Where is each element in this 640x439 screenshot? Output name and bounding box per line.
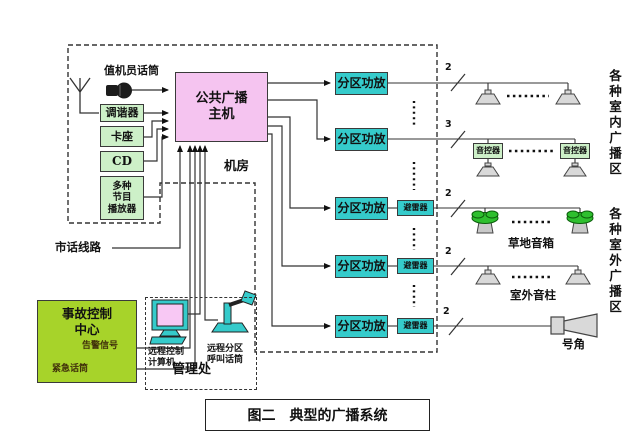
cd-box: CD [100, 151, 144, 172]
broadcast-system-diagram: 值机员话筒 调谐器 卡座 CD 多种 节目 播放器 公共广播 主机 机房 分区功… [0, 0, 640, 439]
emergency-mic-label: 紧急话筒 [52, 364, 88, 375]
figure-caption: 图二 典型的广播系统 [205, 399, 430, 431]
multi-player-box: 多种 节目 播放器 [100, 176, 144, 220]
wire-count-label: 2 [443, 306, 450, 317]
horn-label: 号角 [562, 337, 585, 351]
outdoor-zone-label: 各种室外广播区 [605, 207, 624, 316]
zone-amplifier-box: 分区功放 [335, 315, 388, 338]
indoor-zone-label: 各种室内广播区 [605, 69, 624, 178]
wire-count-label: 2 [445, 62, 452, 73]
lightning-arrester-box: 避雷器 [397, 200, 434, 216]
operator-mic-label: 值机员话筒 [104, 64, 159, 78]
call-mic-label: 远程分区 呼叫话筒 [207, 344, 243, 367]
ceiling-speaker-icon [477, 163, 586, 176]
amp-feed-wires [268, 83, 330, 326]
column-speaker-icon [476, 270, 590, 284]
zone-amplifier-box: 分区功放 [335, 128, 388, 151]
machine-room-label: 机房 [224, 158, 249, 174]
operator-mic-icon [106, 83, 132, 99]
horn-speaker-icon [551, 314, 597, 337]
accident-center-title: 事故控制 中心 [62, 306, 112, 337]
wire-count-label: 3 [445, 119, 452, 130]
zone-amplifier-box: 分区功放 [335, 197, 388, 220]
lawn-speaker-icon [472, 211, 593, 233]
phone-line-label: 市话线路 [55, 240, 101, 254]
main-unit-box: 公共广播 主机 [175, 72, 268, 142]
lawn-speaker-label: 草地音箱 [508, 236, 554, 250]
wire-count-label: 2 [445, 246, 452, 257]
column-speaker-label: 室外音柱 [510, 288, 556, 302]
wire-count-label: 2 [445, 188, 452, 199]
antenna-icon [70, 78, 99, 113]
zone-amplifier-box: 分区功放 [335, 72, 388, 95]
management-label: 管理处 [172, 362, 211, 378]
wire-count-slashes [449, 74, 465, 335]
tape-deck-box: 卡座 [100, 126, 144, 147]
volume-controller-box: 音控器 [560, 143, 590, 159]
volume-controller-box: 音控器 [473, 143, 503, 159]
ceiling-speaker-icon [476, 90, 580, 104]
lightning-arrester-box: 避雷器 [397, 258, 434, 274]
tuner-box: 调谐器 [100, 104, 144, 122]
alarm-signal-label: 告警信号 [82, 341, 118, 352]
zone-amplifier-box: 分区功放 [335, 255, 388, 278]
lightning-arrester-box: 避雷器 [397, 318, 434, 334]
